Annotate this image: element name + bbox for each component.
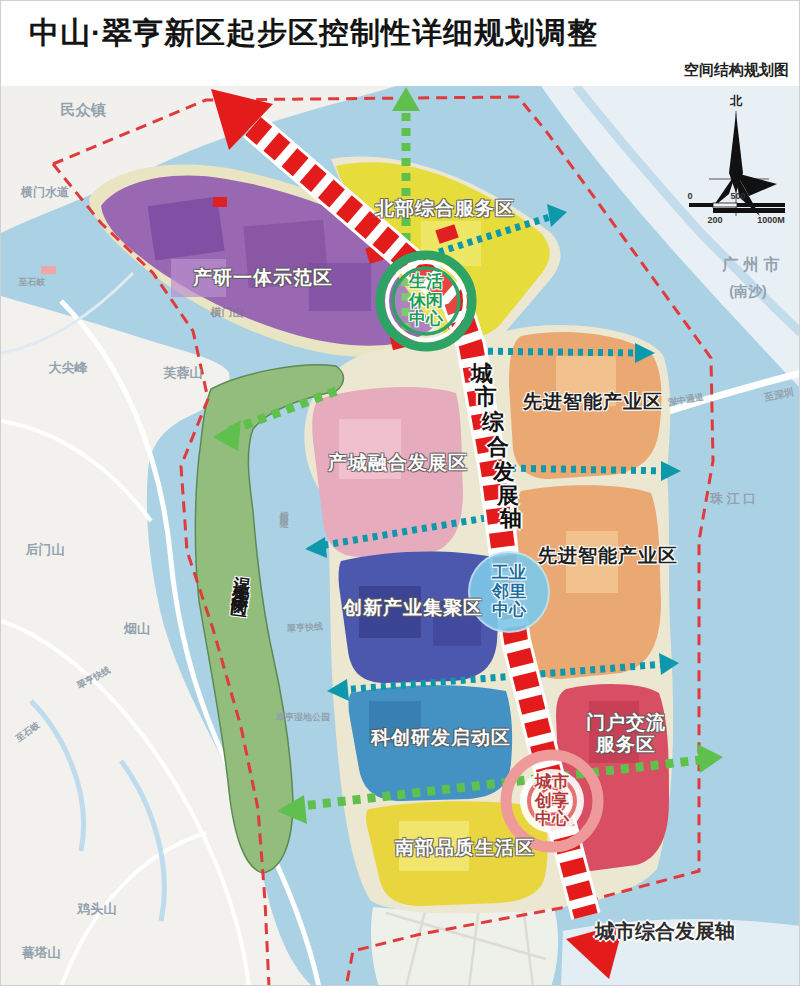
- label-dajianfeng: 大尖峰: [49, 359, 88, 377]
- scale-label-0: 0: [687, 191, 692, 201]
- center-label-industry-neighborhood: 工业邻里中心: [488, 564, 530, 620]
- road-marker: [41, 266, 56, 274]
- label-jitoushan: 鸡头山: [78, 900, 117, 918]
- axis-label-bottom: 城市综合发展轴: [595, 918, 735, 945]
- zone-label-north-services: 北部综合服务区: [375, 196, 515, 222]
- label-fantashan: 蕃塔山: [22, 944, 61, 962]
- zone-label-advanced-industry-south: 先进智能产业区: [538, 543, 678, 569]
- label-hengmen-waterway: 横门水道: [21, 184, 69, 201]
- zone-label-south-quality-living: 南部品质生活区: [395, 835, 535, 861]
- planning-map: 民众镇 横门水道 至石岐 至石岐 大尖峰 芙蓉山 横门山 后门山 烟山 鸡头山 …: [1, 86, 800, 986]
- label-furongshan: 芙蓉山: [164, 364, 203, 382]
- scale-label-200: 200: [707, 215, 722, 225]
- label-wetland-park: 翠亨湿地公园: [276, 711, 330, 724]
- zone-label-advanced-industry-north: 先进智能产业区: [523, 389, 663, 415]
- label-nansha: (南沙): [729, 283, 766, 301]
- label-cuiheng-express-1: 翠亨快线: [287, 620, 324, 635]
- scale-label-500: 500: [730, 191, 745, 201]
- label-yanshan: 烟山: [124, 620, 150, 638]
- zone-label-wetland-eco-leisure: 湿地生态休闲区: [230, 563, 256, 594]
- scale-label-1000m: 1000M: [757, 215, 785, 225]
- zone-label-innovation-cluster: 创新产业集聚区: [343, 595, 483, 621]
- planning-map-page: 中山·翠亨新区起步区控制性详细规划调整 空间结构规划图: [0, 0, 800, 986]
- axis-char-7: 轴: [500, 504, 522, 534]
- zone-label-gateway-services: 门户交流服务区: [583, 712, 669, 756]
- label-hengmen-west-waterway: 横门西水道: [277, 504, 290, 514]
- map-subtitle: 空间结构规划图: [684, 61, 789, 80]
- label-to-shiqi: 至石岐: [19, 276, 46, 289]
- label-hengmenshan: 横门山: [211, 305, 244, 320]
- label-zhujiangkou: 珠 江 口: [710, 490, 756, 508]
- zone-label-rd-startup: 科创研发启动区: [371, 725, 511, 751]
- center-label-city-co-creation: 城市创享中心: [531, 773, 573, 829]
- page-title: 中山·翠亨新区起步区控制性详细规划调整: [29, 13, 598, 54]
- compass-north-label: 北: [730, 93, 742, 110]
- zone-label-industry-research-demo: 产研一体示范区: [193, 265, 333, 291]
- label-guangzhou: 广 州 市: [723, 255, 780, 276]
- zone-label-industry-city-fusion: 产城融合发展区: [328, 450, 468, 476]
- title-bar: 中山·翠亨新区起步区控制性详细规划调整 空间结构规划图: [1, 1, 800, 86]
- label-houmenshan: 后门山: [26, 541, 65, 559]
- label-minzhongzhen: 民众镇: [61, 101, 106, 120]
- center-label-life-leisure: 生活休闲中心: [405, 273, 447, 329]
